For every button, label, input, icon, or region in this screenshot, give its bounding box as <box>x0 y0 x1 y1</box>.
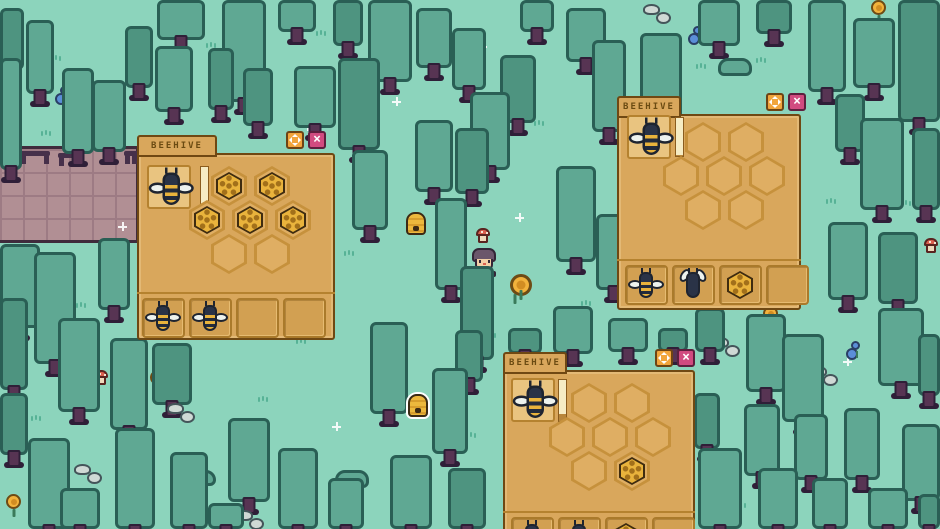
tree-canopy <box>520 0 554 32</box>
tree <box>432 368 468 454</box>
tree-canopy <box>62 68 94 154</box>
rock <box>643 4 660 15</box>
bee-body <box>686 272 700 298</box>
tree <box>0 298 28 390</box>
tree-canopy <box>415 120 453 192</box>
mushroom <box>924 238 938 246</box>
tree <box>508 328 542 354</box>
tree-canopy <box>794 414 828 480</box>
station-top <box>20 151 50 156</box>
tree <box>520 0 554 32</box>
tree-canopy <box>125 26 153 88</box>
tree <box>918 494 940 529</box>
yellow-flower-large <box>510 274 532 296</box>
tree-canopy <box>455 128 489 194</box>
yellow-flower <box>6 494 21 509</box>
tree <box>698 448 742 529</box>
grass-tuft <box>80 302 82 307</box>
tree-canopy <box>860 118 904 210</box>
tree <box>746 314 786 392</box>
move-button[interactable] <box>286 131 304 149</box>
mushroom <box>476 228 490 236</box>
tree <box>448 468 486 529</box>
worker-bee-icon <box>515 522 549 529</box>
tree-canopy <box>756 0 792 34</box>
inventory-slot[interactable] <box>652 517 695 529</box>
inventory-slot[interactable] <box>189 298 232 338</box>
bee-body <box>203 305 217 331</box>
tree-canopy <box>416 8 452 68</box>
tree-canopy <box>110 338 148 430</box>
tree-canopy <box>553 306 593 354</box>
inventory-slot[interactable] <box>142 298 185 338</box>
bee-antennae <box>527 520 537 525</box>
tree-canopy <box>243 68 273 126</box>
tree <box>808 0 846 92</box>
tree <box>556 166 596 262</box>
worker-bee-icon <box>146 303 180 333</box>
sparkle-icon <box>332 422 341 431</box>
bee-portrait-slot[interactable] <box>147 165 191 209</box>
tree-canopy <box>918 494 940 529</box>
tree-canopy <box>508 328 542 354</box>
move-arrow-icon <box>658 355 661 361</box>
tree <box>868 488 908 529</box>
tree-canopy <box>556 166 596 262</box>
tree <box>92 80 126 152</box>
tree-canopy <box>26 20 54 94</box>
tree <box>58 318 100 412</box>
item-count: 5 <box>751 293 758 306</box>
bee-antennae <box>205 301 215 306</box>
tree <box>918 334 940 396</box>
bee-antennae <box>165 168 178 174</box>
worker-bee-icon <box>514 383 557 421</box>
tree-canopy <box>0 298 28 390</box>
inventory-slot[interactable] <box>766 265 809 305</box>
tree <box>416 8 452 68</box>
rock <box>167 403 184 414</box>
tree <box>812 478 848 529</box>
bee-antennae <box>529 381 542 387</box>
tree-canopy <box>452 28 486 90</box>
tree <box>758 468 798 529</box>
tree-canopy <box>912 128 940 210</box>
tree <box>455 128 489 194</box>
tree-canopy <box>898 0 940 122</box>
tree-canopy <box>208 503 244 529</box>
sparkle-icon <box>118 222 127 231</box>
grass-tuft <box>320 30 322 35</box>
tree <box>853 18 895 88</box>
move-arrow-icon <box>667 355 670 361</box>
tree <box>452 28 486 90</box>
move-button[interactable] <box>655 349 673 367</box>
tree <box>328 478 364 529</box>
inventory-slot[interactable] <box>283 298 326 338</box>
tree-canopy <box>92 80 126 152</box>
inventory-slot[interactable] <box>625 265 668 305</box>
honeycomb-item: 1 <box>237 206 263 234</box>
tree-canopy <box>698 0 740 46</box>
tree <box>0 393 28 455</box>
tree-canopy <box>294 66 336 128</box>
tree-canopy <box>853 18 895 88</box>
inventory-slot[interactable] <box>558 517 601 529</box>
tree-canopy <box>878 232 918 304</box>
close-button[interactable]: × <box>677 349 695 367</box>
beehive-object[interactable] <box>408 394 428 417</box>
tree <box>352 150 388 230</box>
tree-canopy <box>278 0 316 32</box>
tree <box>694 393 720 449</box>
grass-tuft <box>210 42 212 47</box>
bee-antennae <box>574 520 584 525</box>
move-arrow-icon <box>772 105 778 108</box>
tree-canopy <box>698 448 742 529</box>
tree-canopy <box>608 318 648 352</box>
honeycomb-item: 1 <box>216 172 242 200</box>
rock <box>74 464 91 475</box>
bee-body <box>527 386 545 419</box>
move-arrow-icon <box>778 99 781 105</box>
bee-body <box>163 173 181 206</box>
tree <box>898 0 940 122</box>
tree-canopy <box>98 238 130 310</box>
tree <box>744 404 780 476</box>
inventory-slot[interactable] <box>605 517 648 529</box>
tree-canopy <box>694 393 720 449</box>
inventory-slot[interactable] <box>236 298 279 338</box>
tree-canopy <box>758 468 798 529</box>
bee-antennae <box>641 268 651 273</box>
tree-canopy <box>828 222 868 300</box>
crafting-station[interactable] <box>124 151 138 167</box>
honeycomb-item: 1 <box>280 206 306 234</box>
tree <box>794 414 828 480</box>
tree <box>782 334 824 422</box>
tree <box>608 318 648 352</box>
honey-progress-bar <box>558 379 567 422</box>
honeycomb-item <box>613 523 639 529</box>
grass-tuft <box>55 55 57 60</box>
tree <box>170 452 208 529</box>
move-arrow-icon <box>292 143 298 146</box>
tree-canopy <box>812 478 848 529</box>
tree <box>390 455 432 529</box>
close-button[interactable]: × <box>788 93 806 111</box>
beehive-panel: BEEHIVE×11111 <box>137 135 335 340</box>
tree <box>125 26 153 88</box>
bush <box>718 58 752 76</box>
tree-canopy <box>746 314 786 392</box>
tree <box>333 0 363 46</box>
inventory-slot[interactable]: 5 <box>719 265 762 305</box>
tree <box>155 46 193 112</box>
bee-body <box>639 272 653 298</box>
grass-tuft <box>45 130 47 135</box>
tree <box>415 120 453 192</box>
bee-body <box>156 305 170 331</box>
tree-canopy <box>152 343 192 405</box>
tree <box>844 408 880 480</box>
tree-canopy <box>868 488 908 529</box>
bee-portrait-slot[interactable] <box>511 378 555 422</box>
tree <box>208 503 244 529</box>
tree <box>60 488 100 529</box>
tree-canopy <box>338 58 380 150</box>
tree <box>912 128 940 210</box>
tree-canopy <box>328 478 364 529</box>
tree-canopy <box>390 455 432 529</box>
tree-canopy <box>157 0 205 40</box>
beehive-panel-title: BEEHIVE <box>137 135 217 157</box>
move-arrow-icon <box>298 137 301 143</box>
grass-tuft <box>348 250 350 255</box>
move-arrow-icon <box>769 99 772 105</box>
grass-tuft <box>262 396 264 401</box>
tree-canopy <box>170 452 208 529</box>
tree <box>243 68 273 126</box>
tree <box>26 20 54 94</box>
tree-canopy <box>60 488 100 529</box>
inventory-slot[interactable] <box>511 517 554 529</box>
worker-bee-icon <box>562 522 596 529</box>
grass-tuft <box>700 63 702 68</box>
tree <box>756 0 792 34</box>
tree <box>553 306 593 354</box>
beehive-panel: BEEHIVE×1 <box>503 352 695 529</box>
honeycomb-item: 5 <box>727 271 753 299</box>
grass-tuft <box>760 57 762 62</box>
tree <box>62 68 94 154</box>
bee-antennae <box>688 268 698 273</box>
tree <box>98 238 130 310</box>
move-button[interactable] <box>766 93 784 111</box>
tree <box>370 322 408 414</box>
crafting-station[interactable] <box>20 151 50 167</box>
tree-canopy <box>208 48 234 110</box>
grass-tuft <box>905 200 907 205</box>
tree <box>152 343 192 405</box>
tree <box>115 428 155 529</box>
tree-canopy <box>0 393 28 455</box>
inventory-slot[interactable] <box>672 265 715 305</box>
bee-antennae <box>158 301 168 306</box>
tree-canopy <box>432 368 468 454</box>
move-arrow-icon <box>661 361 667 364</box>
worker-bee-icon <box>629 270 663 300</box>
tree <box>695 308 725 352</box>
tree-canopy <box>333 0 363 46</box>
bee-portrait-slot[interactable] <box>627 115 671 159</box>
tree <box>828 222 868 300</box>
tree-canopy <box>155 46 193 112</box>
worker-bee-icon <box>630 120 673 158</box>
grass-tuft <box>470 432 472 437</box>
tree-canopy <box>58 318 100 412</box>
tree <box>157 0 205 40</box>
tree-canopy <box>0 58 22 170</box>
grass-tuft <box>538 120 540 125</box>
tree <box>338 58 380 150</box>
honey-progress-bar <box>675 117 684 157</box>
game-scene: BEEHIVE×11111BEEHIVE×5BEEHIVE×1 <box>0 0 940 529</box>
sparkle-icon <box>392 97 401 106</box>
sparkle-icon <box>515 213 524 222</box>
grass-tuft <box>35 415 37 420</box>
tree <box>878 232 918 304</box>
tree <box>278 448 318 529</box>
honeycomb-item: 1 <box>194 206 220 234</box>
tree-canopy <box>918 334 940 396</box>
tree-canopy <box>352 150 388 230</box>
bee-antennae <box>645 118 658 124</box>
drone-bee-icon <box>676 270 710 300</box>
tree <box>110 338 148 430</box>
progress-fill <box>676 118 683 155</box>
bee-body <box>643 123 661 156</box>
tree <box>0 58 22 170</box>
yellow-flower <box>871 0 886 15</box>
progress-fill <box>559 380 566 414</box>
tree <box>294 66 336 128</box>
tree-canopy <box>744 404 780 476</box>
tree <box>278 0 316 32</box>
tree-canopy <box>370 322 408 414</box>
tree-canopy <box>695 308 725 352</box>
grass-tuft <box>830 198 832 203</box>
worker-bee-icon <box>150 170 193 208</box>
move-arrow-icon <box>289 137 292 143</box>
grass-tuft <box>585 300 587 305</box>
tree <box>698 0 740 46</box>
tree-canopy <box>808 0 846 92</box>
tree-canopy <box>448 468 486 529</box>
tree-canopy <box>782 334 824 422</box>
tree-canopy <box>228 418 270 502</box>
honeycomb-item: 1 <box>619 457 645 485</box>
tree <box>208 48 234 110</box>
tree <box>228 418 270 502</box>
tree-canopy <box>278 448 318 529</box>
beehive-object[interactable] <box>406 212 426 235</box>
close-button[interactable]: × <box>308 131 326 149</box>
blue-flower <box>851 341 860 350</box>
tree <box>860 118 904 210</box>
honeycomb-item: 1 <box>259 172 285 200</box>
beehive-panel: BEEHIVE×5 <box>617 96 801 310</box>
tree-canopy <box>844 408 880 480</box>
tree-canopy <box>115 428 155 529</box>
worker-bee-icon <box>193 303 227 333</box>
beehive-panel-title: BEEHIVE <box>503 352 567 374</box>
station-top <box>124 151 138 156</box>
